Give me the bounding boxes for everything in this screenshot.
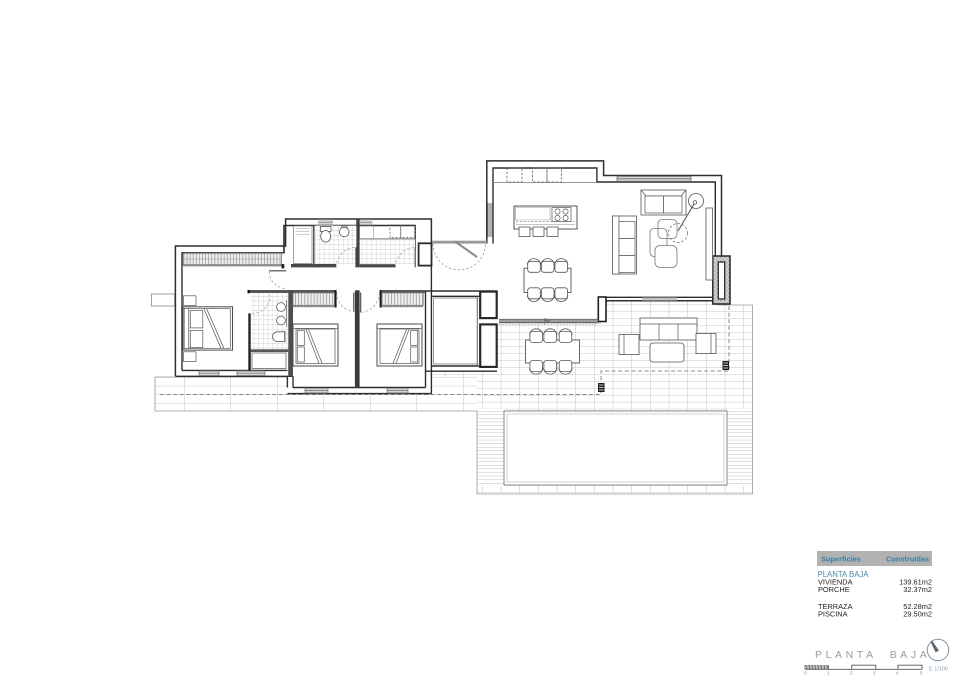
svg-text:PORCHE: PORCHE	[818, 585, 850, 594]
svg-text:32.37m2: 32.37m2	[903, 585, 932, 594]
svg-text:PISCINA: PISCINA	[818, 610, 848, 619]
svg-text:Superficies: Superficies	[821, 555, 861, 564]
svg-text:E 1/100: E 1/100	[929, 667, 948, 673]
svg-text:Construidas: Construidas	[886, 555, 929, 564]
svg-text:PLANTA BAJA: PLANTA BAJA	[815, 649, 930, 661]
svg-text:29.50m2: 29.50m2	[903, 610, 932, 619]
